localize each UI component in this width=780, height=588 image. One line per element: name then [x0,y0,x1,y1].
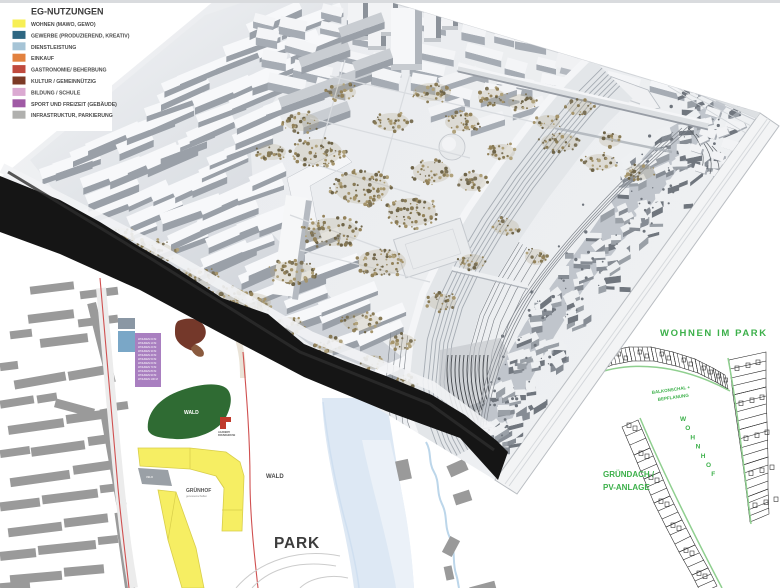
svg-text:VELO: VELO [146,475,153,479]
svg-text:GRÜNDACH /: GRÜNDACH / [603,470,655,479]
svg-text:F: F [711,471,715,478]
svg-text:GEWERBE (PRODUZIEREND, KREATIV: GEWERBE (PRODUZIEREND, KREATIV) [31,33,130,39]
svg-text:WOHNEN 70 M: WOHNEN 70 M [138,365,156,369]
svg-text:N: N [696,444,701,451]
svg-text:O: O [706,462,711,469]
svg-text:WALD: WALD [184,410,199,416]
svg-text:EINKAUF: EINKAUF [31,56,54,62]
svg-text:ROUNDHOUSE: ROUNDHOUSE [218,434,236,437]
svg-text:WOHNEN IM PARK: WOHNEN IM PARK [660,328,768,339]
svg-text:WOHNEN (MAWO, GEWO): WOHNEN (MAWO, GEWO) [31,22,96,28]
svg-text:SPORT UND FREIZEIT (GEBÄUDE): SPORT UND FREIZEIT (GEBÄUDE) [31,101,117,108]
svg-text:WOHNEN 80 M: WOHNEN 80 M [138,369,156,373]
svg-text:BILDUNG / SCHULE: BILDUNG / SCHULE [31,90,81,96]
svg-text:O: O [685,425,690,432]
svg-text:PARK: PARK [274,535,320,552]
svg-text:WOHNEN 40 M: WOHNEN 40 M [138,353,156,357]
svg-text:WALD: WALD [266,474,284,480]
svg-text:EG-NUTZUNGEN: EG-NUTZUNGEN [31,7,104,17]
svg-text:WOHNEN 20 M: WOHNEN 20 M [138,345,156,349]
svg-text:WOHNEN 10 M: WOHNEN 10 M [138,341,156,345]
svg-text:WOHNEN 100 M: WOHNEN 100 M [138,377,158,381]
svg-text:WOHNEN 50 M: WOHNEN 50 M [138,357,156,361]
svg-text:H: H [690,434,695,441]
svg-text:DIENSTLEISTUNG: DIENSTLEISTUNG [31,45,76,51]
svg-text:WOHNEN 60 M: WOHNEN 60 M [138,361,156,365]
svg-text:PV-ANLAGE: PV-ANLAGE [603,483,650,492]
svg-text:WOHNEN 30 M: WOHNEN 30 M [138,349,156,353]
svg-text:GASTRONOMIE/ BEHERBUNG: GASTRONOMIE/ BEHERBUNG [31,68,107,74]
svg-text:INFRASTRUKTUR, PARKIERUNG: INFRASTRUKTUR, PARKIERUNG [31,113,113,119]
svg-text:W: W [680,416,687,423]
svg-text:H: H [701,453,706,460]
svg-text:WOHNEN 90 M: WOHNEN 90 M [138,373,156,377]
svg-text:WOHNEN 00 M: WOHNEN 00 M [138,337,156,341]
svg-text:GRÜNHOF: GRÜNHOF [186,487,211,494]
svg-text:KULTUR / GEMEINNÜTZIG: KULTUR / GEMEINNÜTZIG [31,78,96,85]
svg-text:genossenschaften: genossenschaften [186,494,208,498]
